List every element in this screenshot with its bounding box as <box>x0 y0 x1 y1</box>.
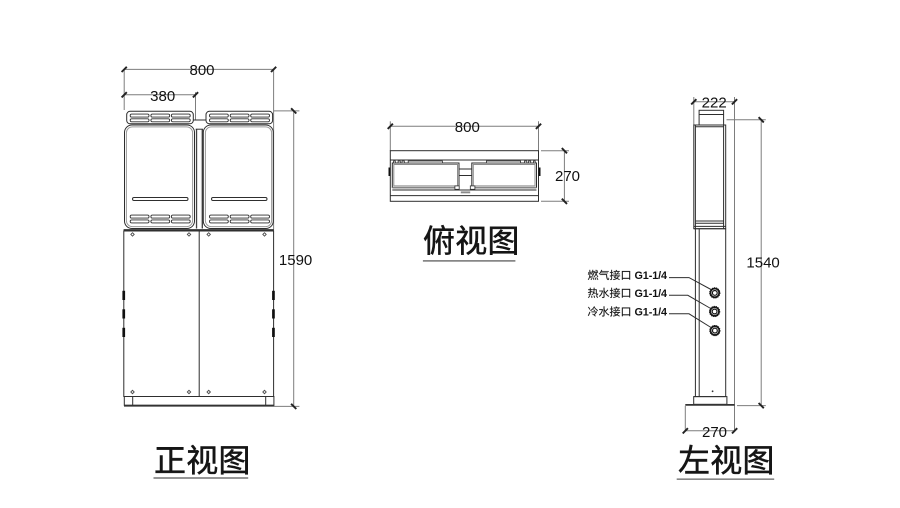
svg-text:G1-1/4: G1-1/4 <box>635 307 668 319</box>
svg-text:G1-1/4: G1-1/4 <box>635 288 668 300</box>
svg-text:270: 270 <box>702 424 727 441</box>
svg-text:800: 800 <box>455 119 480 136</box>
svg-text:1540: 1540 <box>746 254 779 271</box>
svg-text:G1-1/4: G1-1/4 <box>635 270 668 282</box>
svg-text:1590: 1590 <box>279 252 312 269</box>
svg-text:222: 222 <box>702 94 727 111</box>
svg-text:270: 270 <box>555 168 580 185</box>
svg-text:800: 800 <box>189 62 214 79</box>
svg-text:380: 380 <box>150 88 175 105</box>
